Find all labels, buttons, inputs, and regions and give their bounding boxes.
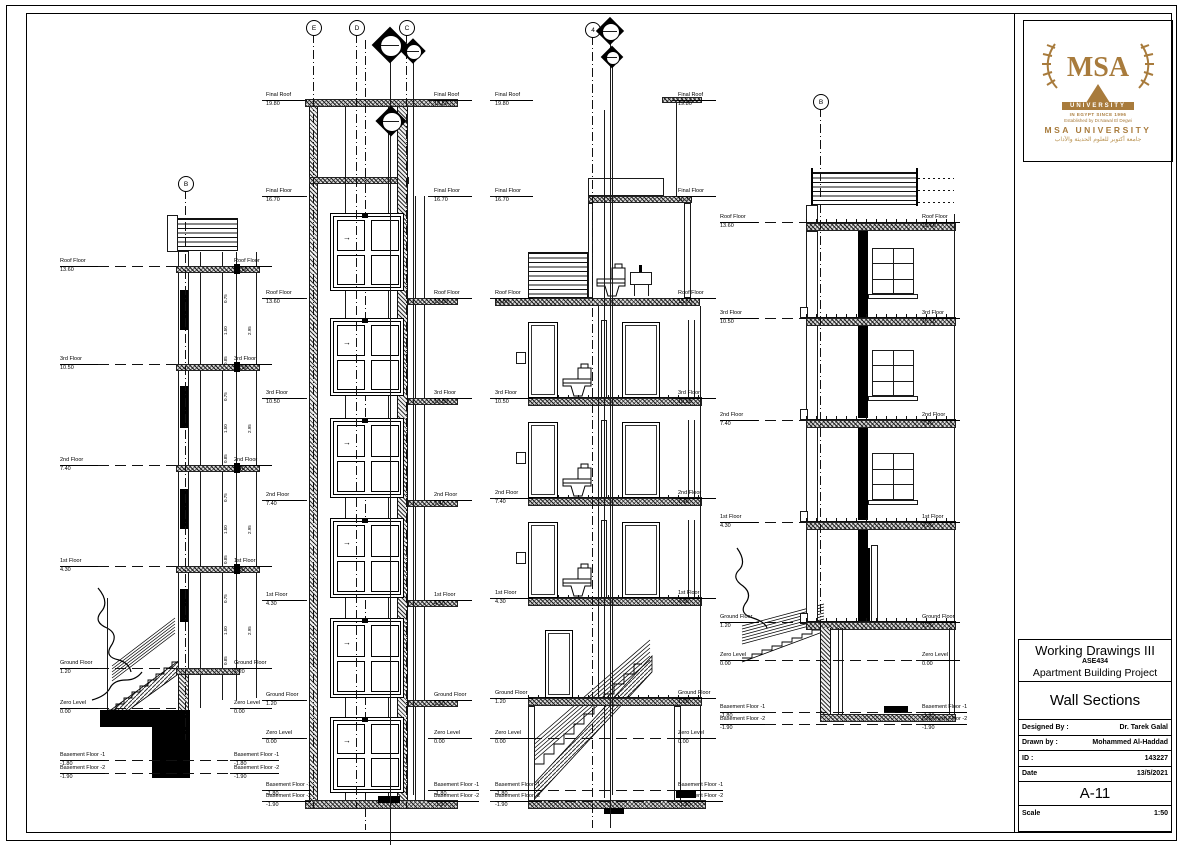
level-marker: Basement Floor -2-1.90 [495,793,551,808]
wall-line [688,320,689,398]
level-name: Basement Floor -1 [495,782,540,791]
level-marker: Roof Floor13.60 [434,290,490,305]
section-marker-divider [607,57,618,58]
level-name: Ground Floor [266,692,304,701]
pit-base [378,796,400,803]
dimension-label: 2.95 [247,626,252,635]
level-name: Roof Floor [266,290,304,299]
level-marker: Roof Floor13.60 [922,214,978,229]
date-value: 13/5/2021 [1137,770,1168,777]
dimension-label: 0.85 [223,555,228,564]
section-marker-divider [381,45,400,46]
wall-line [688,420,689,498]
marker-line [413,51,414,795]
level-marker: Final Roof19.80 [678,92,734,107]
wall-line [842,628,843,714]
level-name: Roof Floor [60,258,98,267]
pergola-post [916,168,918,206]
door-panel [337,561,365,592]
door-panel [371,255,399,285]
level-name: Zero Level [60,700,98,709]
elevator-door: → [330,318,404,396]
basement-wall [178,675,189,712]
level-marker: Ground Floor1.20 [234,660,290,675]
drawn-by-label: Drawn by : [1022,739,1058,746]
level-value: 4.30 [266,601,322,608]
level-marker: Final Floor16.70 [434,188,490,203]
designed-by-value: Dr. Tarek Galal [1119,724,1168,731]
wall-sections-drawing: →→→→→→Roof Floor13.60Roof Floor13.603rd … [0,0,1184,847]
course-code: ASE434 [1021,658,1169,665]
window-fill [180,589,188,622]
level-value: 13.60 [60,267,116,274]
level-marker: 1st Floor4.30 [266,592,322,607]
level-value: 1.20 [234,669,290,676]
level-marker: 2nd Floor7.40 [720,412,776,427]
level-marker: Ground Floor1.20 [678,690,734,705]
grid-line [820,108,821,705]
level-marker: Zero Level0.00 [720,652,776,667]
floor-slab [528,598,702,606]
level-marker: Roof Floor13.60 [678,290,734,305]
door-panel [337,425,365,457]
dotted-line [918,202,954,203]
swing-door [622,322,660,398]
pergola-post [811,168,813,206]
door-panel [337,325,365,356]
door-operator [362,619,368,623]
level-value: 16.70 [678,197,734,204]
wall-line [676,103,677,196]
level-name: Ground Floor [434,692,472,701]
level-marker: Zero Level0.00 [60,700,116,715]
window-fill [180,489,188,529]
drawn-by-value: Mohammed Al-Haddad [1092,739,1168,746]
level-name: Ground Floor [234,660,272,669]
level-value: 4.30 [678,599,734,606]
dimension-label: 1.50 [223,626,228,635]
level-value: 0.00 [678,739,734,746]
level-marker: 3rd Floor10.50 [434,390,490,405]
msa-laurel-icon: MSA [1039,40,1157,90]
level-name: Final Floor [266,188,304,197]
level-name: Roof Floor [720,214,758,223]
level-name: Final Roof [678,92,716,101]
door-operator [362,718,368,722]
level-marker: 1st Floor4.30 [678,590,734,605]
level-marker: Roof Floor13.60 [234,258,290,273]
level-marker: 2nd Floor7.40 [495,490,551,505]
level-marker: Basement Floor -2-1.90 [922,716,978,731]
door-panel [371,425,399,457]
door-panel [337,360,365,390]
level-name: 1st Floor [720,514,758,523]
level-value: 19.80 [678,101,734,108]
level-value: 4.30 [720,523,776,530]
duct-box [516,352,526,364]
drawn-by-row: Drawn by : Mohammed Al-Haddad [1019,736,1171,752]
level-marker: Roof Floor13.60 [720,214,776,229]
level-marker: Basement Floor -2-1.90 [234,765,290,780]
logo-established-text: Established by Dr.Nawal El Degwi [1064,118,1132,123]
level-value: 10.50 [720,319,776,326]
level-value: 19.80 [434,101,490,108]
level-name: 2nd Floor [234,457,272,466]
level-value: 4.30 [922,523,978,530]
level-value: 1.20 [720,623,776,630]
marker-line [610,31,611,828]
level-value: 13.60 [434,299,490,306]
level-value: 16.70 [266,197,322,204]
door-panel [371,758,399,787]
door-operator [362,519,368,523]
level-name: Roof Floor [922,214,960,223]
basement-wall [820,628,831,716]
dimension-label: 1.50 [223,424,228,433]
level-marker: Basement Floor -2-1.90 [266,793,322,808]
marker-line [390,45,391,845]
level-value: -1.90 [720,725,776,732]
machine-room-slab [309,177,409,184]
level-marker: Basement Floor -2-1.90 [434,793,490,808]
level-marker: 1st Floor4.30 [495,590,551,605]
dimension-label: 0.85 [223,656,228,665]
level-value: -1.90 [60,774,116,781]
level-marker: Zero Level0.00 [266,730,322,745]
room-wall [684,203,691,298]
section-marker-divider [407,51,419,52]
faucet [639,265,642,272]
door-panel [337,661,365,692]
level-name: 1st Floor [234,558,272,567]
level-marker: Zero Level0.00 [495,730,551,745]
door-panel [371,661,399,692]
door-panel [337,220,365,251]
door-swing-arrow: → [343,234,351,242]
interior-wall [858,529,868,548]
dotted-line [918,178,954,179]
level-value: -1.90 [434,802,490,809]
window-mullion [893,351,894,395]
dimension-label: 0.75 [223,594,228,603]
window-muntin [873,469,913,470]
door-panel [371,724,399,754]
level-value: 7.40 [922,421,978,428]
scale-label: Scale [1022,810,1040,817]
dimension-label: 0.85 [223,356,228,365]
door-panel [337,724,365,754]
stair-wall-line [107,598,108,712]
door-leaf [871,545,878,622]
level-value: 0.00 [266,739,322,746]
door-swing-arrow: → [343,639,351,647]
duct-box [516,552,526,564]
level-name: 1st Floor [922,514,960,523]
level-line [748,660,950,661]
date-label: Date [1022,770,1037,777]
section-marker-circle [602,23,620,41]
door-wall [858,548,870,622]
sink [630,272,652,285]
wall-line [200,252,201,708]
wall-line [236,252,237,700]
floor-slab [528,398,702,406]
level-marker: Basement Floor -2-1.90 [678,793,734,808]
dimension-label: 2.95 [247,326,252,335]
level-marker: Ground Floor1.20 [495,690,551,705]
wall-line [694,420,695,498]
door-panel [337,758,365,787]
grid-bubble: B [813,94,829,110]
level-marker: 1st Floor4.30 [60,558,116,573]
level-name: 2nd Floor [60,457,98,466]
section-marker-divider [383,121,399,122]
logo-arabic-name: جامعة أكتوبر للعلوم الحديثة والآداب [1055,136,1142,143]
level-value: 7.40 [678,499,734,506]
swing-door [528,322,558,398]
level-marker: 2nd Floor7.40 [434,492,490,507]
level-name: Basement Floor -1 [234,752,279,761]
logo-university-name: MSA UNIVERSITY [1045,125,1152,135]
level-marker: Ground Floor1.20 [60,660,116,675]
level-value: 4.30 [495,599,551,606]
parapet-wall [167,215,178,252]
swing-door [528,422,558,498]
level-marker: 3rd Floor10.50 [720,310,776,325]
level-marker: 2nd Floor7.40 [678,490,734,505]
sink-leg [648,285,649,296]
level-value: -1.90 [266,802,322,809]
level-marker: Zero Level0.00 [434,730,490,745]
wall-line [688,520,689,598]
level-value: -1.90 [922,725,978,732]
level-name: 3rd Floor [434,390,472,399]
level-value: 7.40 [60,466,116,473]
course-title: Working Drawings III [1021,643,1169,658]
dimension-label: 1.50 [223,525,228,534]
level-name: Basement Floor -1 [266,782,311,791]
level-marker: 2nd Floor7.40 [266,492,322,507]
level-line [98,773,230,774]
door-swing-arrow: → [343,339,351,347]
level-name: Basement Floor -1 [922,704,967,713]
dotted-line [918,190,954,191]
level-name: Roof Floor [234,258,272,267]
level-name: Final Roof [266,92,304,101]
level-value: 0.00 [720,661,776,668]
level-marker: 3rd Floor10.50 [922,310,978,325]
interior-wall [858,428,868,520]
drawing-sheet: →→→→→→Roof Floor13.60Roof Floor13.603rd … [0,0,1184,847]
wall-line [949,628,950,714]
level-value: 10.50 [495,399,551,406]
door-panel [371,561,399,592]
university-banner: UNIVERSITY [1062,102,1134,110]
level-name: 1st Floor [434,592,472,601]
sheet-number: A-11 [1019,782,1171,806]
level-value: 13.60 [495,299,551,306]
id-row: ID : 143227 [1019,751,1171,767]
level-marker: 3rd Floor10.50 [678,390,734,405]
level-value: 0.00 [60,709,116,716]
level-marker: Ground Floor1.20 [266,692,322,707]
elevator-door: → [330,213,404,291]
dimension-label: 1.50 [223,326,228,335]
msa-monogram: MSA [1067,52,1130,83]
grid-line [592,36,593,828]
level-name: Basement Floor -2 [234,765,279,774]
level-name: 2nd Floor [678,490,716,499]
window-sill [868,500,918,505]
door-panel [371,625,399,657]
level-value: 4.30 [234,567,290,574]
level-marker: Ground Floor1.20 [434,692,490,707]
wall-line [415,196,416,802]
level-marker: 2nd Floor7.40 [234,457,290,472]
level-value: 1.20 [922,623,978,630]
level-name: Zero Level [495,730,533,739]
duct-box [516,452,526,464]
level-value: 1.20 [266,701,322,708]
wall-line [694,520,695,598]
level-marker: 3rd Floor10.50 [266,390,322,405]
wall-line [954,628,955,714]
interior-wall [858,325,868,418]
level-name: 2nd Floor [434,492,472,501]
door-swing-arrow: → [343,737,351,745]
level-name: Basement Floor -1 [434,782,479,791]
level-marker: 3rd Floor10.50 [60,356,116,371]
level-marker: Final Floor16.70 [678,188,734,203]
level-value: 7.40 [495,499,551,506]
level-value: -1.90 [495,802,551,809]
level-name: 3rd Floor [495,390,533,399]
logo-since-text: IN EGYPT SINCE 1996 [1070,112,1127,117]
elevator-door: → [330,518,404,598]
floor-slab [528,498,702,506]
door-panel [371,325,399,356]
roof-beam [588,178,664,196]
sink-leg [634,285,635,296]
door-operator [362,419,368,423]
level-name: 3rd Floor [60,356,98,365]
level-marker: Zero Level0.00 [678,730,734,745]
level-name: Final Roof [434,92,472,101]
level-name: Ground Floor [60,660,98,669]
level-value: 7.40 [434,501,490,508]
dimension-label: 0.75 [223,294,228,303]
level-marker: Roof Floor13.60 [60,258,116,273]
dimension-label: 0.85 [223,454,228,463]
door-frame [531,425,555,495]
level-marker: Final Floor16.70 [495,188,551,203]
level-name: Basement Floor -2 [720,716,765,725]
title-block: MSA UNIVERSITY IN EGYPT SINCE 1996 Estab… [1014,13,1173,833]
level-marker: 1st Floor4.30 [234,558,290,573]
level-value: 16.70 [434,197,490,204]
level-name: Basement Floor -1 [720,704,765,713]
level-value: 10.50 [678,399,734,406]
level-name: Basement Floor -2 [434,793,479,802]
level-marker: Roof Floor13.60 [266,290,322,305]
grid-bubble: E [306,20,322,36]
swing-door [622,522,660,598]
door-panel [337,255,365,285]
level-value: 4.30 [434,601,490,608]
level-name: Basement Floor -1 [678,782,723,791]
level-name: Ground Floor [720,614,758,623]
level-name: Roof Floor [495,290,533,299]
level-value: 13.60 [678,299,734,306]
swing-door [545,630,573,698]
level-marker: Basement Floor -2-1.90 [60,765,116,780]
level-name: Zero Level [720,652,758,661]
level-name: 1st Floor [678,590,716,599]
level-name: 2nd Floor [720,412,758,421]
level-name: Zero Level [434,730,472,739]
level-name: Basement Floor -2 [678,793,723,802]
project-name: Apartment Building Project [1021,667,1169,679]
dimension-label: 2.95 [247,424,252,433]
level-marker: 1st Floor4.30 [434,592,490,607]
level-marker: Final Roof19.80 [495,92,551,107]
level-value: 19.80 [266,101,322,108]
window-fill [180,386,188,428]
door-panel [371,360,399,390]
door-panel [337,525,365,557]
pipe-line [598,306,599,698]
window-muntin [873,484,913,485]
geometry-layer: →→→→→→Roof Floor13.60Roof Floor13.603rd … [0,0,1184,847]
level-marker: Final Roof19.80 [434,92,490,107]
level-name: Ground Floor [922,614,960,623]
window-muntin [873,279,913,280]
level-value: -1.90 [678,802,734,809]
scale-row: Scale 1:50 [1019,806,1171,821]
project-header: Working Drawings III ASE434 Apartment Bu… [1019,640,1171,682]
window-sill [868,294,918,299]
door-frame [531,325,555,395]
elevator-door: → [330,418,404,498]
level-marker: 2nd Floor7.40 [60,457,116,472]
level-name: Basement Floor -2 [60,765,105,774]
level-marker: 2nd Floor7.40 [922,412,978,427]
level-value: -1.90 [234,774,290,781]
door-frame [625,425,657,495]
level-name: 3rd Floor [922,310,960,319]
grid-line [185,190,186,740]
grid-bubble: D [349,20,365,36]
level-value: 0.00 [495,739,551,746]
level-value: 1.20 [434,701,490,708]
level-value: 0.00 [922,661,978,668]
window-muntin [873,263,913,264]
title-block-info: Working Drawings III ASE434 Apartment Bu… [1018,639,1172,832]
level-name: Ground Floor [678,690,716,699]
level-value: 4.30 [60,567,116,574]
level-value: 13.60 [234,267,290,274]
level-value: 0.00 [434,739,490,746]
wall-line [838,628,839,714]
door-frame [625,525,657,595]
level-value: 7.40 [266,501,322,508]
level-marker: Final Roof19.80 [266,92,322,107]
pergola-louver [812,172,918,205]
level-name: Final Floor [678,188,716,197]
elevator-door: → [330,717,404,793]
designed-by-row: Designed By : Dr. Tarek Galal [1019,720,1171,736]
level-name: Zero Level [922,652,960,661]
